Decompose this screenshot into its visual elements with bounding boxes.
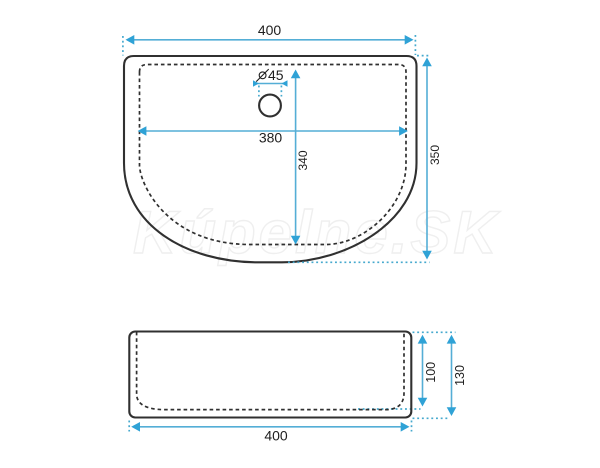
svg-text:340: 340 [296,150,310,170]
svg-text:380: 380 [259,130,283,146]
svg-text:400: 400 [264,427,288,443]
svg-text:400: 400 [258,22,282,38]
svg-text:350: 350 [428,145,442,165]
svg-text:100: 100 [424,362,438,383]
svg-text:130: 130 [453,365,467,386]
svg-text:45: 45 [268,67,284,83]
svg-text:Kúpelne.SK: Kúpelne.SK [133,199,500,266]
